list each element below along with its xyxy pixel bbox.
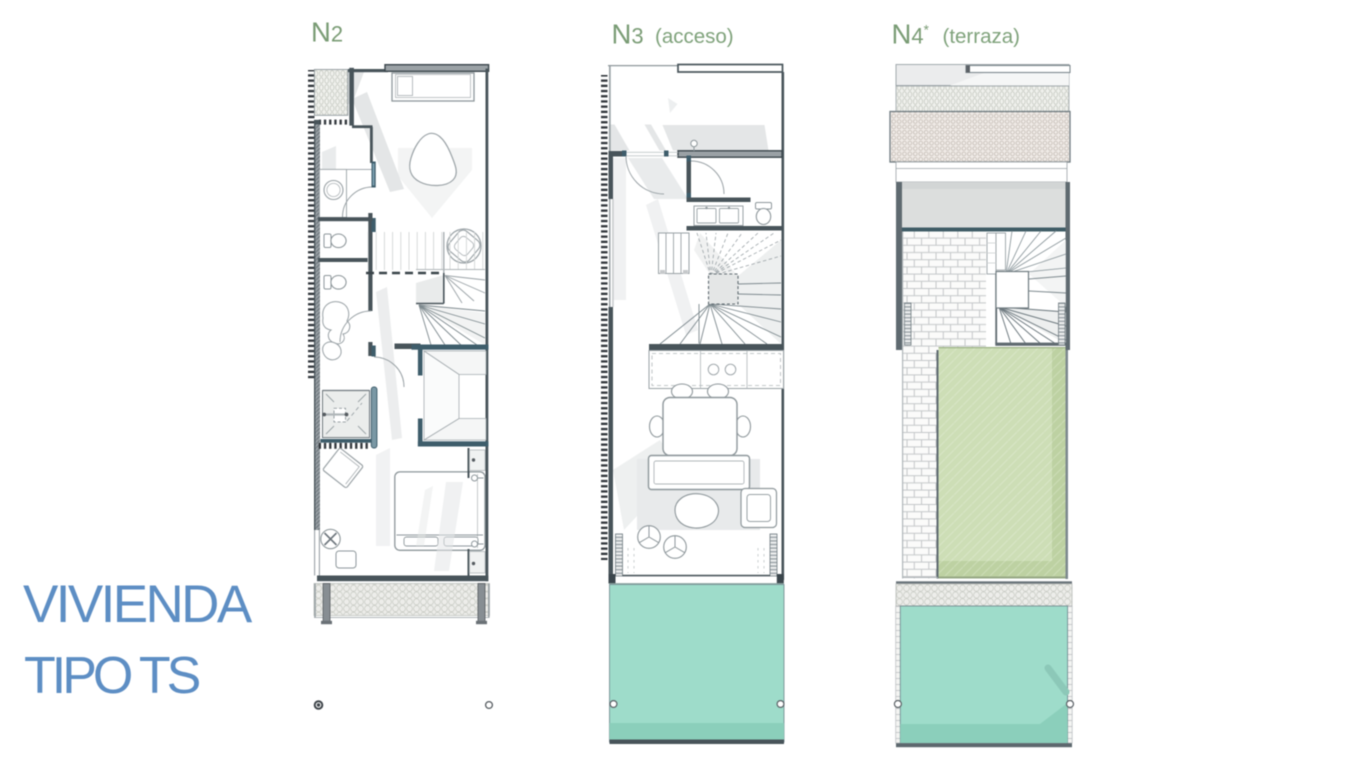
svg-text:(terraza): (terraza) xyxy=(943,25,1020,48)
svg-text:VIVIENDA: VIVIENDA xyxy=(23,575,253,634)
svg-text:TIPO TS: TIPO TS xyxy=(24,647,200,705)
svg-text:(acceso): (acceso) xyxy=(655,25,734,48)
svg-text:N2: N2 xyxy=(311,17,343,48)
svg-text:N3: N3 xyxy=(612,19,644,50)
